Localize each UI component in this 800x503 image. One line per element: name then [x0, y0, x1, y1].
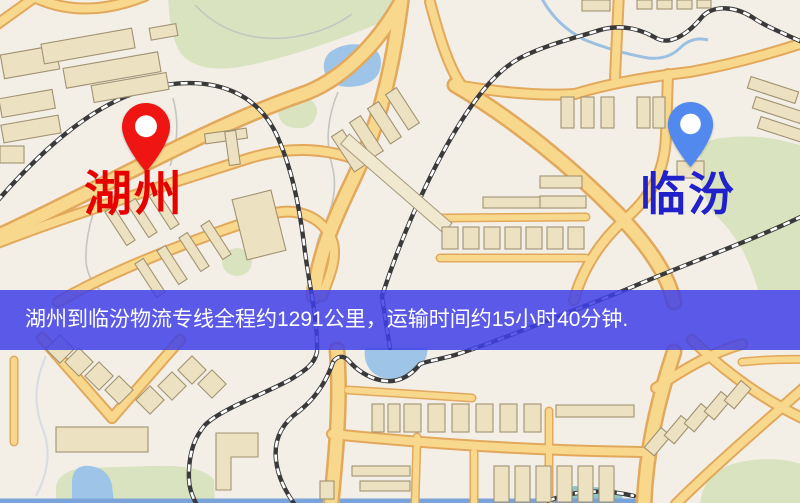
origin-label: 湖州	[84, 171, 184, 219]
destination-label: 临汾	[640, 172, 736, 218]
route-info-text: 湖州到临汾物流专线全程约1291公里，运输时间约15小时40分钟.	[0, 290, 800, 350]
origin-pin[interactable]	[121, 103, 171, 172]
map-canvas[interactable]	[0, 0, 800, 503]
destination-pin[interactable]	[667, 102, 714, 167]
destination-pin-icon	[667, 102, 714, 167]
map-screenshot: 湖州 临汾 湖州到临汾物流专线全程约1291公里，运输时间约15小时40分钟.	[0, 0, 800, 503]
origin-pin-icon	[121, 103, 171, 172]
route-info-banner: 湖州到临汾物流专线全程约1291公里，运输时间约15小时40分钟.	[0, 290, 800, 350]
